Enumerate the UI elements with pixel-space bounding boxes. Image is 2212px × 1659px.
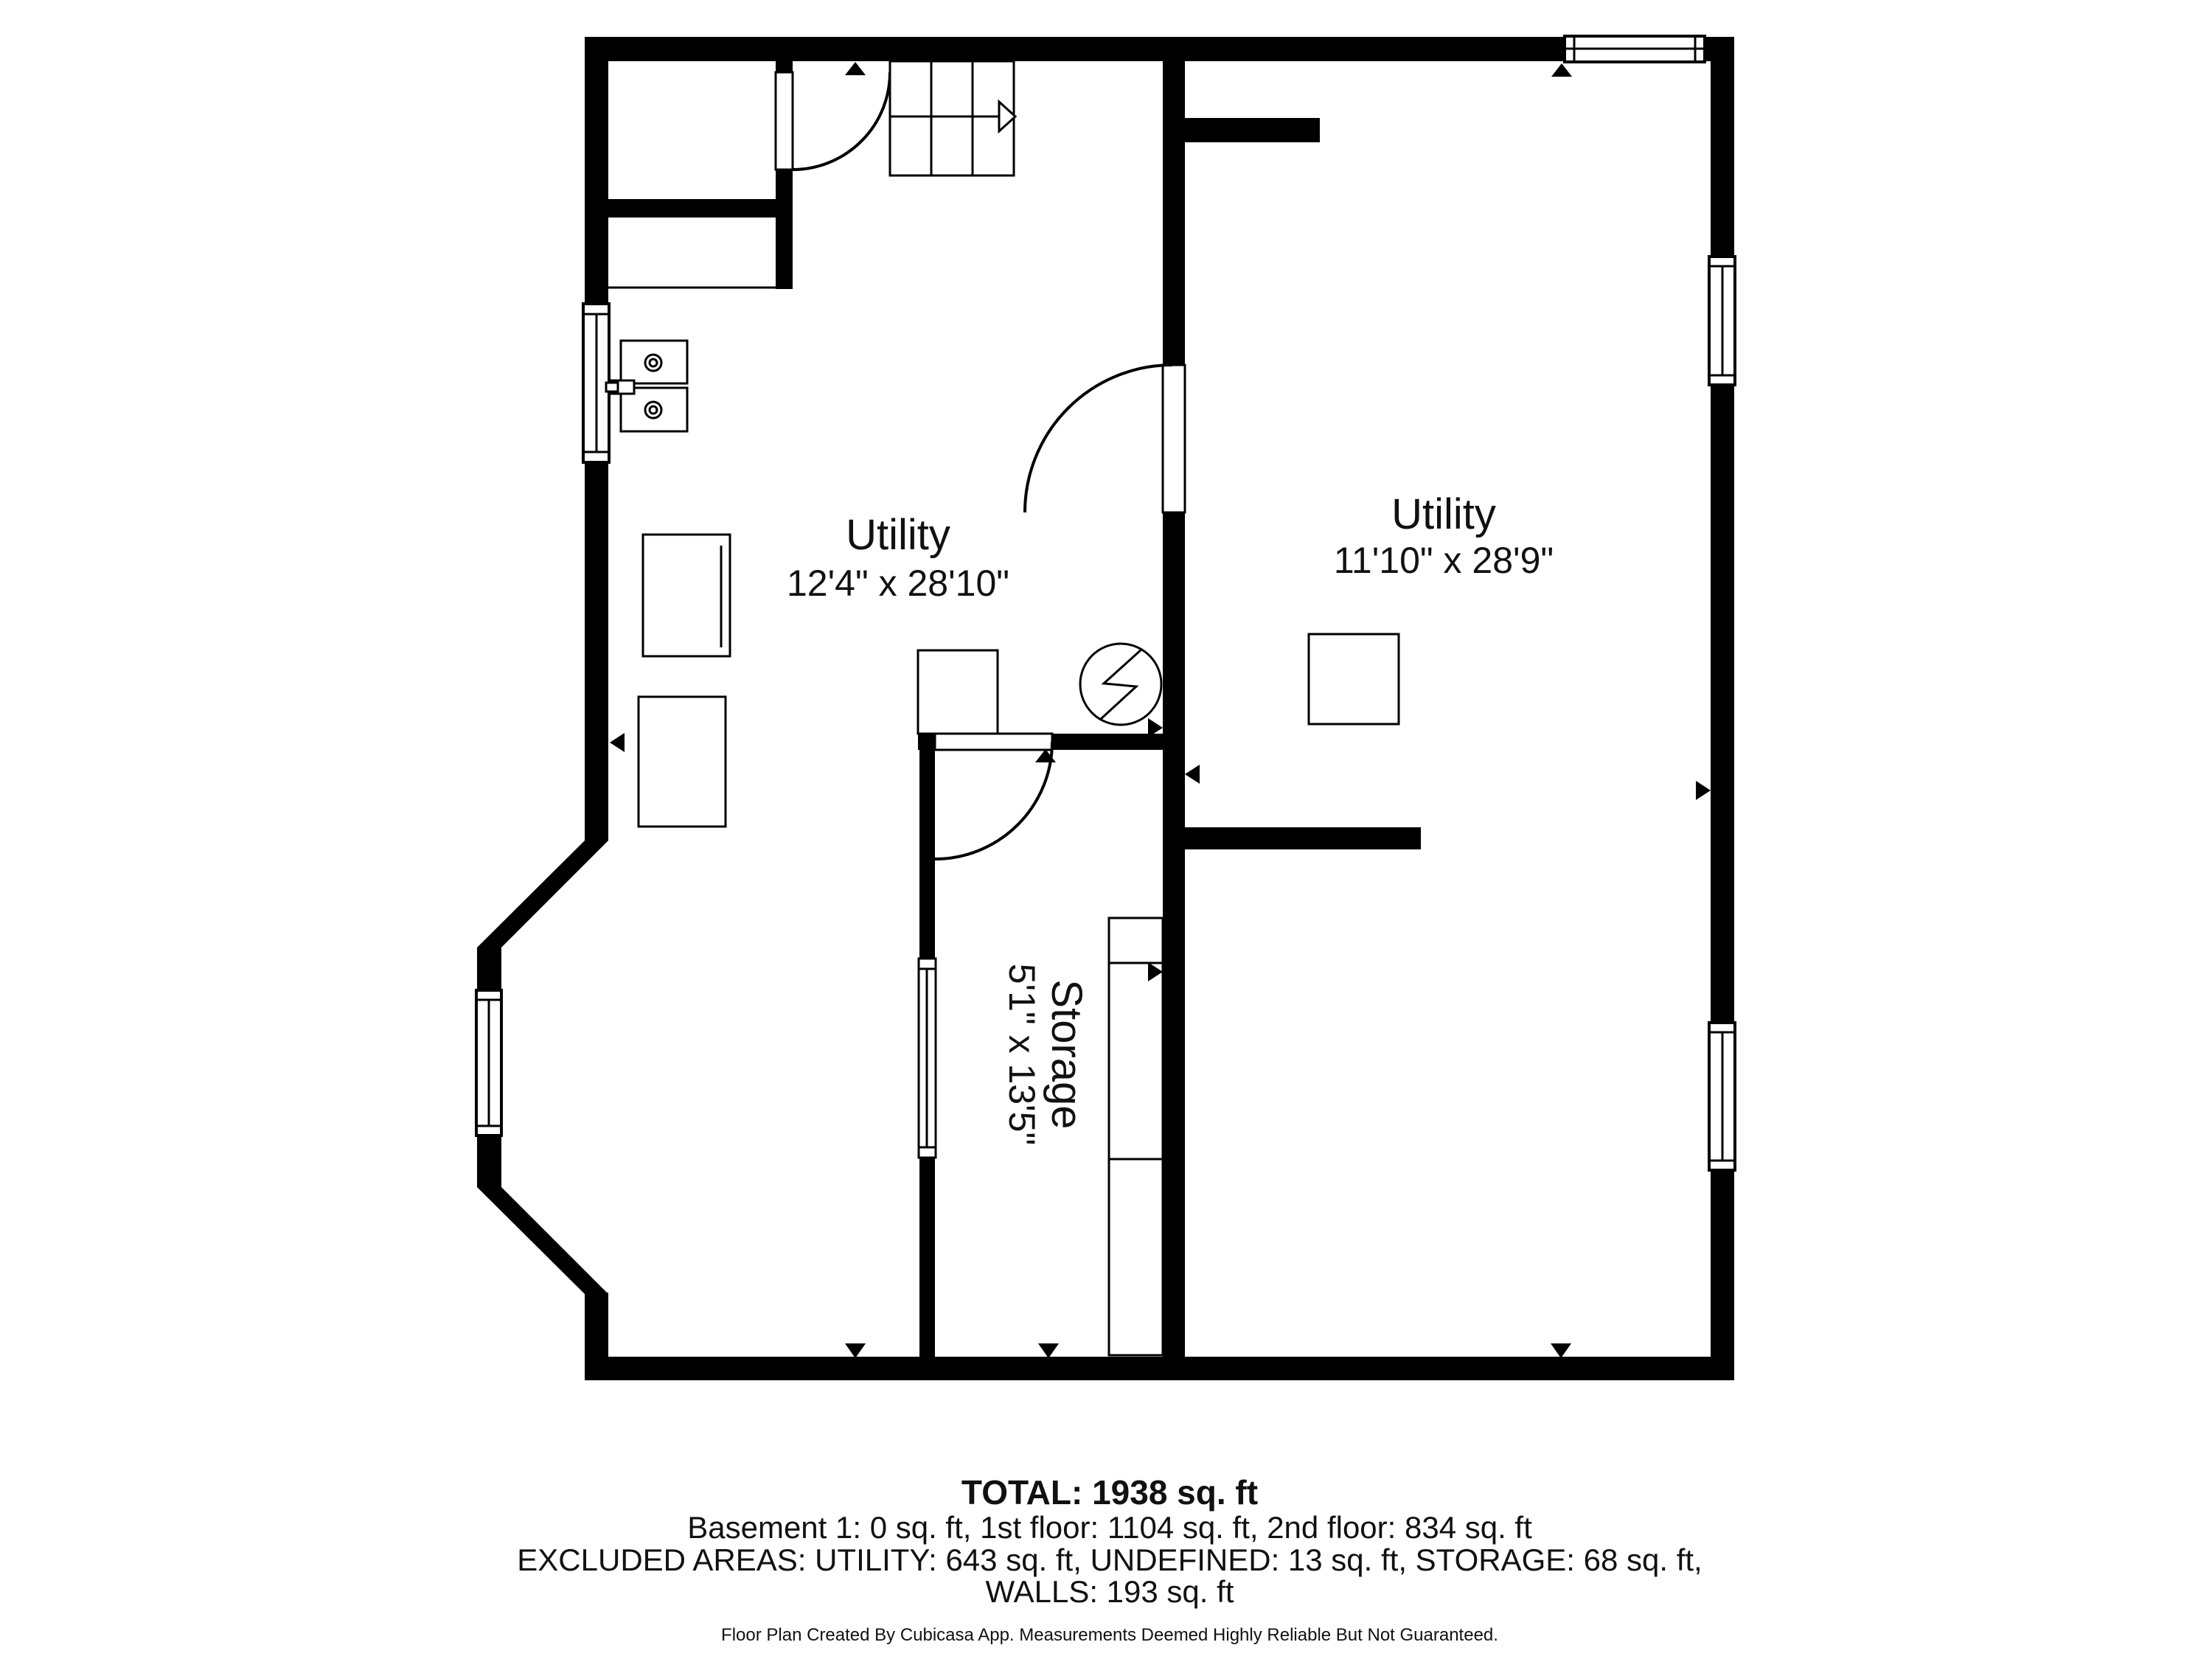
wall-middle	[1163, 61, 1185, 1357]
floor-plan-image: Utility 12'4" x 28'10" Utility 11'10" x …	[0, 0, 2212, 1659]
arrow-down-icon	[1551, 1343, 1571, 1358]
arrow-left-icon	[1185, 765, 1200, 784]
door-closet	[776, 72, 890, 170]
summary-excluded-areas: EXCLUDED AREAS: UTILITY: 643 sq. ft, UND…	[517, 1543, 1702, 1577]
electrical-panel-icon	[1080, 644, 1161, 725]
summary-total: TOTAL: 1938 sq. ft	[961, 1473, 1258, 1512]
arrow-up-icon	[1551, 63, 1572, 77]
window-storage-left	[919, 959, 936, 1158]
room-label-utility-left: Utility	[846, 511, 950, 559]
window-right-lower	[1709, 1023, 1735, 1170]
floor-plan-page: Utility 12'4" x 28'10" Utility 11'10" x …	[0, 0, 2212, 1659]
wall-stub-top-right	[1185, 118, 1320, 142]
wall-bay-upper-diagonal	[477, 841, 608, 947]
stairs-icon	[890, 61, 1015, 175]
wall-bay-lower-diagonal	[477, 1187, 608, 1294]
arrow-down-icon	[1038, 1343, 1059, 1358]
summary-block: TOTAL: 1938 sq. ft Basement 1: 0 sq. ft,…	[517, 1473, 1702, 1645]
room-dims-utility-left: 12'4" x 28'10"	[787, 563, 1009, 604]
wall-closet-bottom	[585, 199, 776, 218]
door-between-utilities	[1025, 365, 1185, 512]
wall-stub-right	[1185, 827, 1421, 849]
wall-top	[585, 37, 1734, 61]
door-storage	[935, 734, 1052, 859]
water-heater-icon	[1309, 634, 1399, 724]
water-heater-icon	[918, 650, 998, 734]
room-label-storage: Storage	[1043, 979, 1091, 1129]
wall-right	[1711, 37, 1734, 1380]
room-dims-utility-right: 11'10" x 28'9"	[1334, 540, 1554, 581]
summary-floors: Basement 1: 0 sq. ft, 1st floor: 1104 sq…	[687, 1510, 1532, 1545]
appliance-icon	[643, 535, 730, 656]
room-label-storage-group: Storage 5'1" x 13'5"	[1001, 964, 1091, 1145]
room-label-utility-right: Utility	[1391, 490, 1496, 538]
double-sink-icon	[606, 341, 687, 431]
arrow-left-icon	[610, 733, 625, 752]
storage-shelf-icon	[1109, 918, 1163, 1355]
wall-left-lower	[585, 1293, 608, 1380]
wall-bottom	[585, 1357, 1734, 1380]
room-dims-storage: 5'1" x 13'5"	[1001, 964, 1043, 1145]
appliance-icon	[639, 697, 726, 827]
window-top-right	[1565, 36, 1705, 62]
summary-walls: WALLS: 193 sq. ft	[986, 1574, 1234, 1609]
arrow-up-icon	[845, 62, 866, 75]
window-bay	[476, 990, 501, 1135]
window-right-upper	[1709, 257, 1735, 385]
arrow-down-icon	[845, 1343, 866, 1358]
disclaimer-text: Floor Plan Created By Cubicasa App. Meas…	[721, 1625, 1498, 1645]
arrow-right-icon	[1696, 781, 1711, 800]
